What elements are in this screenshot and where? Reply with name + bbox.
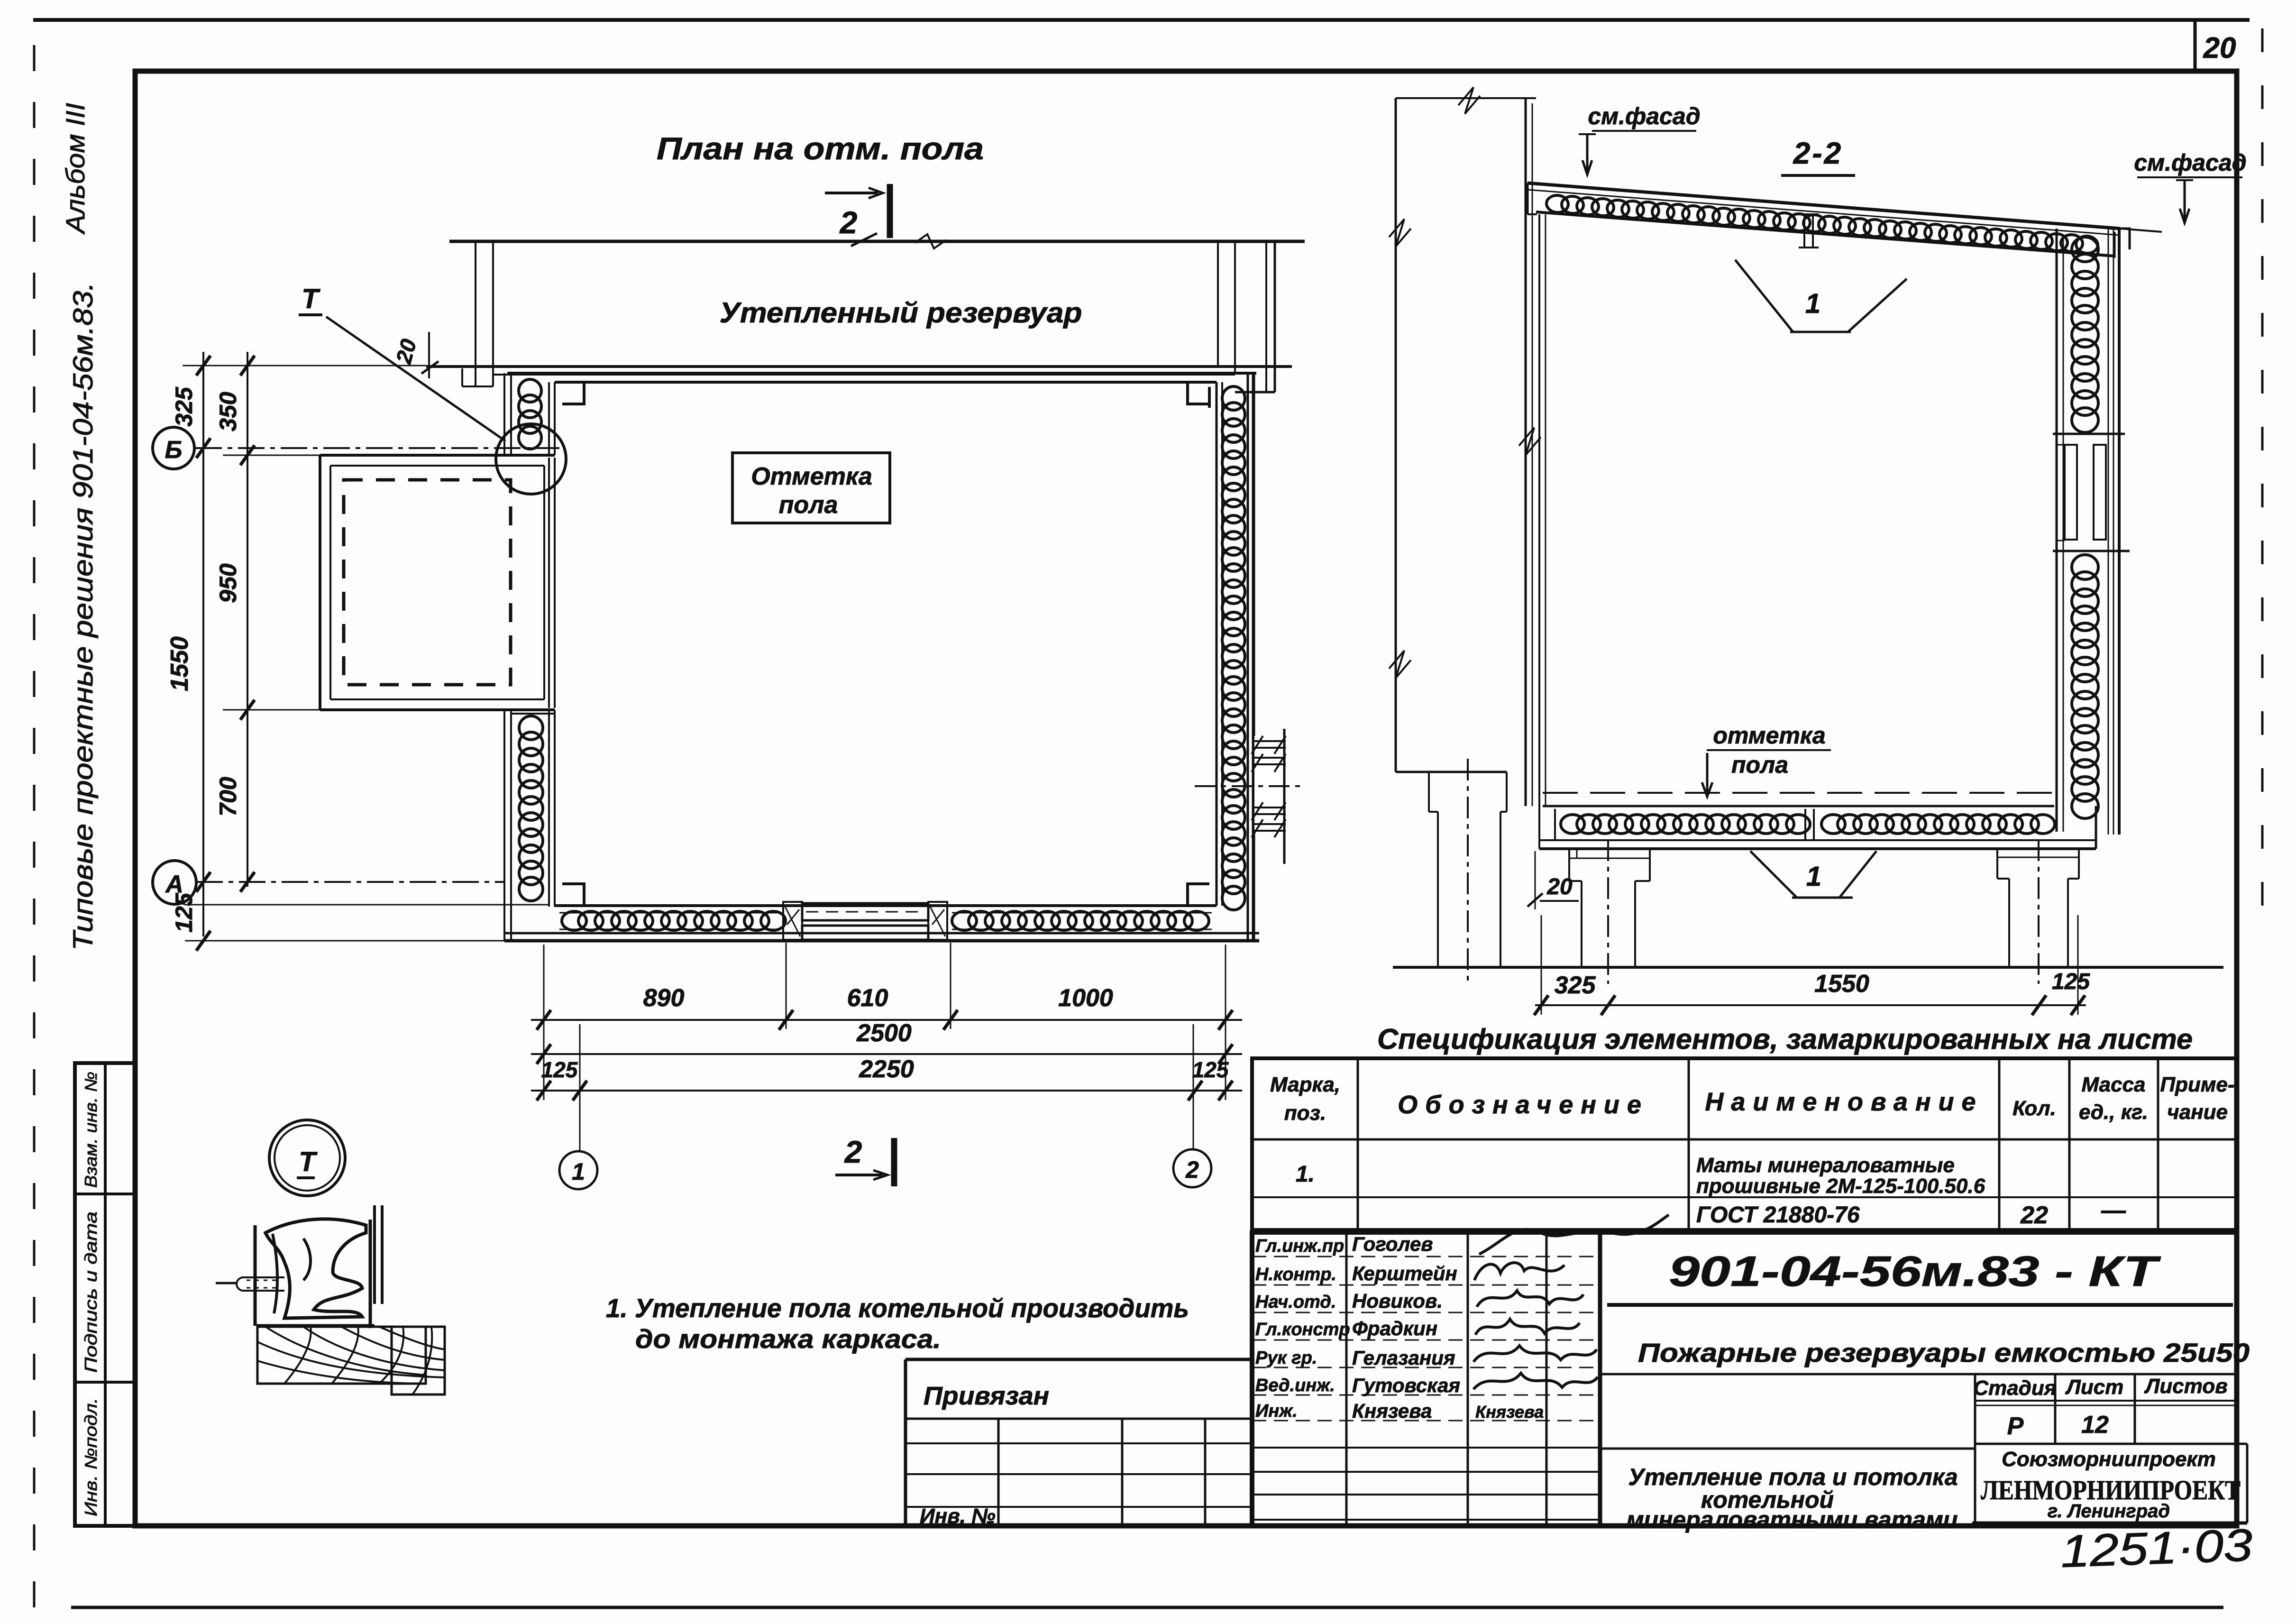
svg-text:2: 2 — [839, 205, 858, 240]
svg-text:Маты минераловатные: Маты минераловатные — [1696, 1154, 1955, 1177]
svg-text:Новиков.: Новиков. — [1352, 1290, 1443, 1312]
svg-text:Вед.инж.: Вед.инж. — [1255, 1376, 1335, 1395]
svg-text:минераловатными ватами: минераловатными ватами — [1627, 1506, 1958, 1533]
svg-text:1.: 1. — [1296, 1162, 1315, 1187]
svg-text:Взам. инв. №: Взам. инв. № — [81, 1072, 101, 1188]
svg-text:Гл.инж.пр: Гл.инж.пр — [1255, 1236, 1344, 1256]
svg-text:12: 12 — [2081, 1411, 2109, 1439]
svg-text:прошивные 2М-125-100.50.6: прошивные 2М-125-100.50.6 — [1696, 1174, 1985, 1198]
svg-text:1: 1 — [1805, 288, 1820, 319]
svg-text:пола: пола — [779, 491, 838, 519]
svg-text:Масса: Масса — [2081, 1073, 2145, 1096]
svg-text:125: 125 — [171, 892, 197, 933]
svg-text:Гутовская: Гутовская — [1352, 1374, 1460, 1396]
svg-text:поз.: поз. — [1284, 1101, 1326, 1125]
svg-text:Инж.: Инж. — [1255, 1401, 1298, 1421]
svg-text:1. Утепление пола котельной пр: 1. Утепление пола котельной производить — [606, 1293, 1189, 1323]
svg-text:Листов: Листов — [2144, 1375, 2228, 1398]
svg-text:Гоголев: Гоголев — [1352, 1233, 1433, 1255]
svg-text:Союзморниипроект: Союзморниипроект — [2002, 1448, 2216, 1471]
svg-text:Утепленный резервуар: Утепленный резервуар — [720, 297, 1082, 329]
svg-text:1: 1 — [572, 1158, 585, 1185]
svg-text:Гелазания: Гелазания — [1352, 1347, 1455, 1369]
svg-text:2: 2 — [1185, 1156, 1199, 1183]
svg-text:1000: 1000 — [1058, 984, 1113, 1012]
svg-text:125: 125 — [1192, 1057, 1229, 1082]
svg-text:Князева: Князева — [1352, 1400, 1432, 1422]
svg-text:Лист: Лист — [2065, 1376, 2124, 1399]
svg-text:—: — — [2101, 1197, 2126, 1224]
svg-text:1550: 1550 — [1814, 970, 1869, 998]
svg-text:ГОСТ 21880-76: ГОСТ 21880-76 — [1696, 1202, 1860, 1228]
svg-text:950: 950 — [215, 563, 241, 603]
svg-text:Инв. №: Инв. № — [920, 1505, 996, 1528]
svg-text:1: 1 — [1806, 861, 1821, 892]
svg-text:Фрадкин: Фрадкин — [1352, 1317, 1437, 1340]
svg-text:125: 125 — [2052, 969, 2090, 994]
svg-text:Кол.: Кол. — [2012, 1097, 2056, 1120]
svg-text:125: 125 — [541, 1057, 578, 1082]
svg-text:см.фасад: см.фасад — [1588, 103, 1700, 129]
svg-text:чание: чание — [2167, 1101, 2228, 1124]
svg-text:2: 2 — [844, 1134, 862, 1169]
svg-text:Князева: Князева — [1475, 1402, 1544, 1422]
svg-text:22: 22 — [2020, 1202, 2048, 1229]
svg-text:Б: Б — [165, 436, 183, 464]
svg-text:Т: Т — [299, 1147, 318, 1177]
svg-text:Наименование: Наименование — [1705, 1088, 1983, 1116]
svg-text:Стадия: Стадия — [1973, 1376, 2056, 1400]
svg-text:Приме-: Приме- — [2160, 1073, 2234, 1096]
svg-text:Т: Т — [302, 284, 320, 314]
svg-text:325: 325 — [1555, 972, 1596, 999]
svg-text:Нач.отд.: Нач.отд. — [1255, 1292, 1336, 1312]
svg-text:Керштейн: Керштейн — [1352, 1262, 1457, 1285]
svg-text:Привязан: Привязан — [924, 1382, 1049, 1410]
svg-text:до монтажа каркаса.: до монтажа каркаса. — [635, 1324, 941, 1354]
svg-text:Подпись и дата: Подпись и дата — [81, 1211, 101, 1373]
svg-text:890: 890 — [643, 984, 685, 1012]
svg-text:1251·03: 1251·03 — [2060, 1520, 2253, 1577]
svg-text:Н.контр.: Н.контр. — [1255, 1265, 1336, 1285]
svg-text:Рук гр.: Рук гр. — [1255, 1348, 1317, 1368]
svg-text:Инв. №подл.: Инв. №подл. — [81, 1398, 101, 1516]
svg-text:350: 350 — [215, 392, 241, 431]
svg-text:Типовые проектные решения 9: Типовые проектные решения 901-04-56м.83. — [68, 282, 99, 951]
svg-text:ед., кг.: ед., кг. — [2079, 1101, 2148, 1124]
svg-text:2250: 2250 — [859, 1055, 914, 1083]
svg-text:Альбом III: Альбом III — [60, 103, 90, 235]
svg-text:2500: 2500 — [856, 1019, 912, 1047]
svg-text:Гл.констр: Гл.констр — [1255, 1320, 1350, 1340]
svg-text:20: 20 — [2203, 32, 2236, 64]
svg-text:План на отм. пола: План на отм. пола — [657, 131, 984, 166]
svg-text:г. Ленинград: г. Ленинград — [2048, 1501, 2170, 1522]
svg-text:Обозначение: Обозначение — [1398, 1091, 1649, 1119]
svg-text:отметка: отметка — [1713, 722, 1825, 749]
svg-text:20: 20 — [1546, 874, 1573, 899]
svg-text:610: 610 — [847, 984, 888, 1012]
svg-text:см.фасад: см.фасад — [2134, 149, 2246, 176]
svg-text:700: 700 — [215, 777, 241, 817]
svg-text:Пожарные резервуары емкостью 2: Пожарные резервуары емкостью 25и50 — [1638, 1338, 2250, 1367]
svg-text:Марка,: Марка, — [1270, 1073, 1340, 1096]
svg-text:Отметка: Отметка — [751, 463, 872, 490]
svg-text:901-04-56м.83 - КТ: 901-04-56м.83 - КТ — [1669, 1248, 2161, 1295]
svg-text:2-2: 2-2 — [1793, 136, 1843, 170]
svg-text:Спецификация элементов, замарк: Спецификация элементов, замаркированных … — [1377, 1023, 2193, 1055]
svg-text:Р: Р — [2007, 1413, 2024, 1440]
svg-text:пола: пола — [1731, 752, 1788, 778]
svg-text:1550: 1550 — [166, 636, 193, 691]
svg-text:325: 325 — [171, 386, 197, 427]
